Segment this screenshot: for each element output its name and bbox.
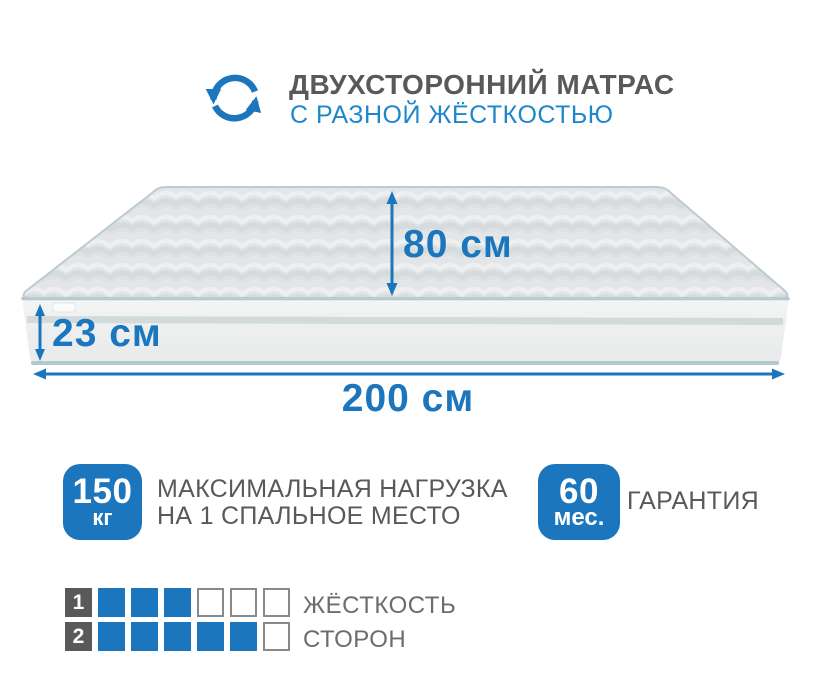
rotate-arc-bottom bbox=[215, 101, 256, 118]
rotate-arrows-icon bbox=[203, 67, 265, 129]
firmness-cell-filled bbox=[230, 622, 257, 651]
firmness-cell-empty bbox=[263, 588, 290, 617]
mattress-figure: 80 см 23 см 200 см bbox=[0, 165, 816, 427]
firmness-cell-empty bbox=[197, 588, 224, 617]
width-dimension-label: 200 см bbox=[342, 377, 474, 420]
max-load-unit: кг bbox=[92, 507, 112, 528]
firmness-cell-filled bbox=[197, 622, 224, 651]
warranty-unit: мес. bbox=[554, 507, 605, 528]
max-load-label-line1: МАКСИМАЛЬНАЯ НАГРУЗКА bbox=[157, 476, 508, 503]
height-dimension-label: 80 см bbox=[403, 223, 513, 266]
mattress-tag bbox=[53, 303, 75, 312]
warranty-label: ГАРАНТИЯ bbox=[627, 488, 759, 515]
firmness-row-number: 1 bbox=[65, 588, 92, 617]
firmness-cell-filled bbox=[164, 588, 191, 617]
max-load-value: 150 bbox=[73, 476, 133, 507]
firmness-scale-label-line1: ЖЁСТКОСТЬ bbox=[303, 592, 456, 620]
firmness-row-number: 2 bbox=[65, 622, 92, 651]
firmness-cell-empty bbox=[230, 588, 257, 617]
page-subtitle: С РАЗНОЙ ЖЁСТКОСТЬЮ bbox=[290, 101, 614, 130]
page-title: ДВУХСТОРОННИЙ МАТРАС bbox=[289, 69, 675, 101]
max-load-label-line2: НА 1 СПАЛЬНОЕ МЕСТО bbox=[157, 503, 508, 530]
firmness-cell-filled bbox=[98, 622, 125, 651]
firmness-cell-filled bbox=[164, 622, 191, 651]
firmness-cell-empty bbox=[263, 622, 290, 651]
max-load-label: МАКСИМАЛЬНАЯ НАГРУЗКА НА 1 СПАЛЬНОЕ МЕСТ… bbox=[157, 476, 508, 530]
warranty-value: 60 bbox=[559, 476, 599, 507]
firmness-cell-filled bbox=[131, 622, 158, 651]
firmness-row-side2: 2 bbox=[65, 622, 290, 651]
firmness-row-side1: 1 bbox=[65, 588, 290, 617]
rotate-arc-top bbox=[213, 78, 255, 100]
max-load-badge: 150 кг bbox=[63, 464, 142, 540]
warranty-badge: 60 мес. bbox=[538, 464, 620, 540]
thickness-dimension-label: 23 см bbox=[52, 312, 162, 355]
firmness-cell-filled bbox=[98, 588, 125, 617]
firmness-cell-filled bbox=[131, 588, 158, 617]
firmness-scale-label-line2: СТОРОН bbox=[303, 626, 406, 654]
